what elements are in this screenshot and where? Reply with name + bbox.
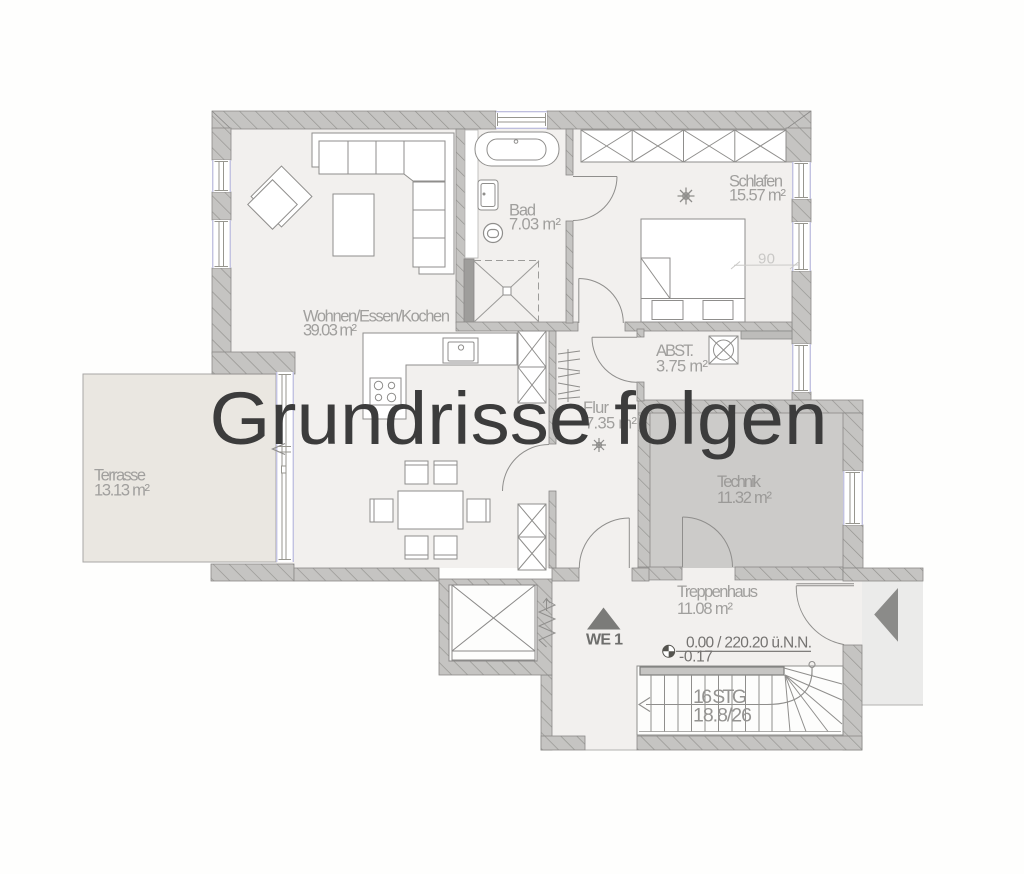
svg-text:11.08 m²: 11.08 m² [677,600,734,618]
svg-text:18.8/26: 18.8/26 [693,705,752,727]
svg-text:15.57 m²: 15.57 m² [729,187,787,205]
svg-text:WE 1: WE 1 [586,632,623,649]
svg-text:90: 90 [758,251,775,268]
svg-text:11.32 m²: 11.32 m² [717,489,773,507]
svg-text:39.03 m²: 39.03 m² [303,322,358,340]
svg-text:Treppenhaus: Treppenhaus [677,583,758,601]
svg-text:Grundrisse folgen: Grundrisse folgen [210,377,828,460]
svg-text:-0.17: -0.17 [679,649,713,666]
svg-text:13.13 m²: 13.13 m² [94,482,151,500]
svg-text:7.03 m²: 7.03 m² [509,216,562,234]
svg-text:3.75 m²: 3.75 m² [656,358,709,376]
